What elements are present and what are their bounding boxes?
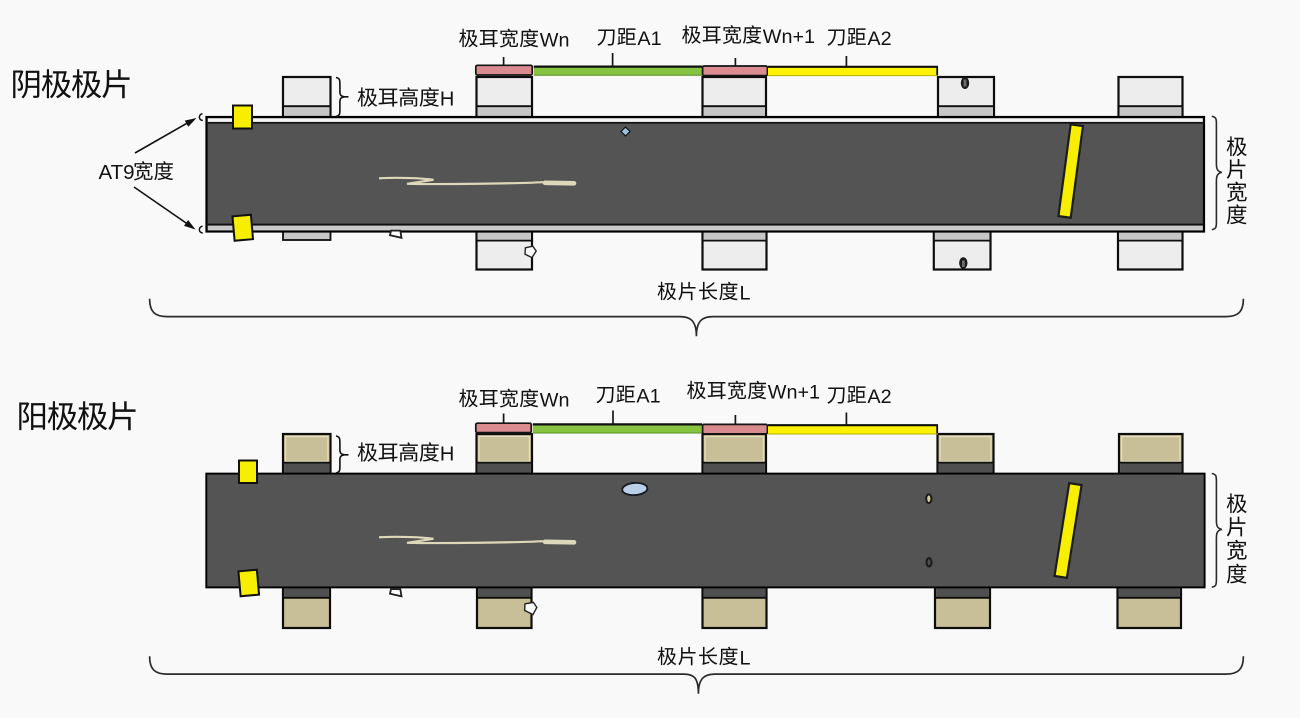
svg-text:A2: A2 (867, 386, 891, 408)
svg-text:L: L (740, 647, 751, 669)
svg-text:H: H (440, 89, 454, 111)
svg-text:H: H (440, 444, 454, 466)
svg-text:Wn: Wn (540, 389, 570, 411)
svg-text:A1: A1 (637, 28, 661, 50)
svg-text:Wn+1: Wn+1 (768, 381, 820, 403)
svg-text:AT9: AT9 (99, 161, 135, 184)
svg-text:Wn+1: Wn+1 (763, 26, 815, 48)
svg-text:L: L (740, 282, 751, 304)
svg-text:Wn: Wn (540, 29, 570, 51)
svg-text:A2: A2 (867, 28, 891, 50)
svg-text:A1: A1 (636, 385, 660, 407)
